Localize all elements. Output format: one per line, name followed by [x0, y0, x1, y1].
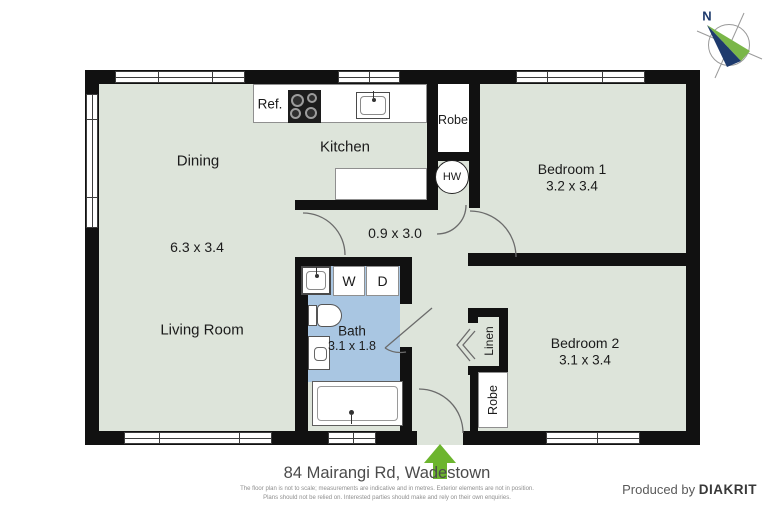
- washer-label: W: [342, 273, 355, 289]
- dryer-label: D: [377, 273, 387, 289]
- window-mullion: [353, 433, 354, 443]
- burner-icon: [291, 94, 304, 107]
- linen-label: Linen: [483, 326, 495, 355]
- credit-prefix: Produced by: [622, 482, 695, 497]
- compass-needle-green: [707, 25, 750, 61]
- window-mullion: [602, 72, 603, 82]
- bathtub-inner: [317, 386, 398, 421]
- robe1-label: Robe: [438, 114, 468, 127]
- wall-linen-left-cap: [468, 308, 478, 323]
- window-bottom-bath: [328, 432, 376, 444]
- wall-bedroom1-bottom: [468, 253, 700, 266]
- producer-credit: Produced by DIAKRIT: [600, 482, 757, 497]
- window-mullion: [87, 197, 97, 198]
- basin-icon: [314, 347, 327, 361]
- burner-icon: [290, 108, 301, 119]
- dryer-box: D: [366, 266, 399, 296]
- hot-water-cylinder: HW: [435, 160, 469, 194]
- burner-icon: [307, 93, 317, 103]
- tap-icon: [372, 98, 376, 102]
- address-title: 84 Mairangi Rd, Wadestown: [187, 464, 587, 483]
- vanity-icon: [308, 336, 330, 370]
- wall-linen-right: [499, 308, 508, 375]
- kitchen-sink-icon: [356, 92, 390, 119]
- robe2-label: Robe: [487, 385, 500, 415]
- room-label-kitchen: Kitchen: [320, 140, 370, 155]
- window-mullion: [212, 72, 213, 82]
- wall-bath-right-upper: [400, 257, 412, 304]
- tap-icon: [373, 91, 374, 98]
- kitchen-bench: [335, 168, 427, 200]
- bathtub-icon: [312, 381, 403, 426]
- tub-faucet-icon: [351, 415, 352, 424]
- stove-icon: [288, 90, 321, 123]
- window-top-dining: [115, 71, 245, 83]
- room-label-dining: Dining: [177, 154, 220, 169]
- room-dims-bedroom2: 3.1 x 3.4: [559, 353, 611, 367]
- room-label-bedroom2: Bedroom 2: [551, 336, 619, 350]
- compass-circle: [709, 25, 750, 66]
- disclaimer-line1: The floor plan is not to scale; measurem…: [187, 486, 587, 492]
- toilet-cistern-icon: [308, 305, 317, 326]
- compass-north-label: N: [702, 9, 711, 24]
- window-mullion: [547, 72, 548, 82]
- compass-needle-navy: [707, 25, 741, 67]
- room-dims-dining: 6.3 x 3.4: [170, 240, 224, 254]
- floorplan-page: Ref. Robe HW W D Dining 6.3 x: [0, 0, 768, 512]
- wall-robe1-right: [469, 84, 480, 208]
- hall-dims: 0.9 x 3.0: [368, 226, 422, 240]
- window-mullion: [597, 433, 598, 443]
- room-label-bath: Bath: [338, 324, 366, 338]
- room-dims-bath: 3.1 x 1.8: [328, 340, 376, 353]
- wall-hall-top: [295, 200, 438, 210]
- compass-cross-line: [697, 31, 762, 59]
- wall-kitchen-right: [427, 84, 438, 205]
- tap-icon: [316, 267, 317, 274]
- window-mullion: [159, 433, 160, 443]
- hw-label: HW: [443, 171, 461, 183]
- wall-robe2-left: [470, 366, 478, 445]
- room-label-bedroom1: Bedroom 1: [538, 162, 606, 176]
- window-mullion: [369, 72, 370, 82]
- compass-cross-line: [715, 13, 744, 78]
- room-dims-bedroom1: 3.2 x 3.4: [546, 179, 598, 193]
- window-mullion: [158, 72, 159, 82]
- window-top-kitchen: [338, 71, 400, 83]
- window-left-dining: [86, 94, 98, 228]
- washer-box: W: [333, 266, 365, 296]
- laundry-sink-icon: [301, 266, 331, 295]
- room-label-living: Living Room: [160, 323, 243, 338]
- disclaimer-line2: Plans should not be relied on. Intereste…: [187, 495, 587, 501]
- wall-laundry-top: [295, 257, 412, 266]
- burner-icon: [305, 107, 317, 119]
- window-mullion: [239, 433, 240, 443]
- fridge-label: Ref.: [258, 97, 283, 111]
- credit-brand: DIAKRIT: [699, 482, 757, 497]
- window-mullion: [87, 119, 97, 120]
- entry-opening: [417, 431, 463, 445]
- window-bottom-living: [124, 432, 272, 444]
- tap-icon: [315, 274, 319, 278]
- window-bottom-bedroom2: [546, 432, 640, 444]
- window-top-bedroom1: [516, 71, 645, 83]
